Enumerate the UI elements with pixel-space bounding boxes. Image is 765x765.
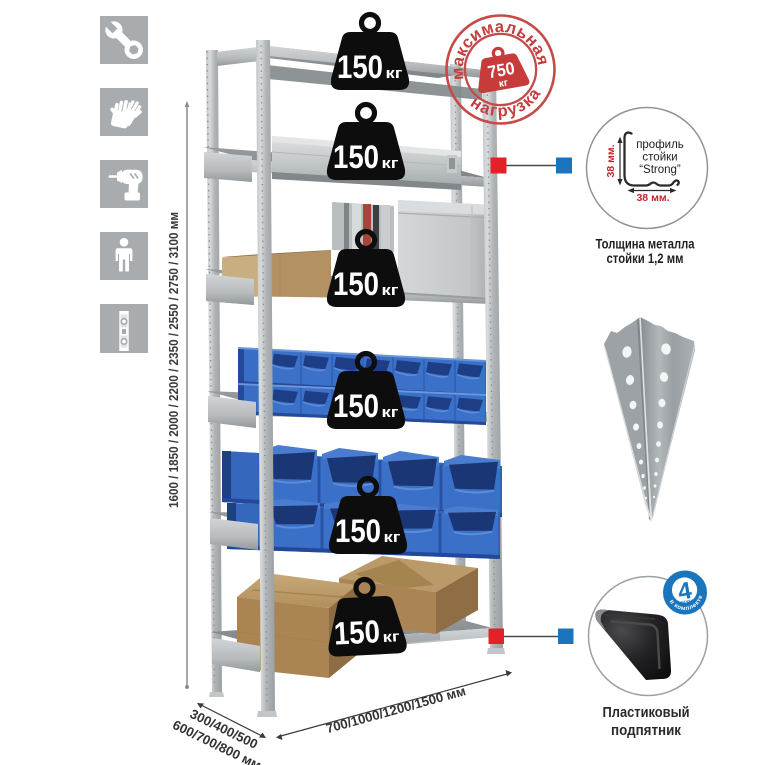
svg-text:подпятник: подпятник xyxy=(611,722,681,739)
svg-text:38 мм.: 38 мм. xyxy=(636,192,669,204)
svg-text:стойки: стойки xyxy=(642,152,677,164)
svg-text:кг: кг xyxy=(498,77,509,89)
svg-text:профиль: профиль xyxy=(636,139,684,151)
svg-text:стойки 1,2 мм: стойки 1,2 мм xyxy=(607,250,684,266)
svg-text:38 мм.: 38 мм. xyxy=(605,144,617,177)
svg-text:“Strong”: “Strong” xyxy=(639,164,681,176)
svg-text:1600 / 1850 / 2000 / 2200 / 23: 1600 / 1850 / 2000 / 2200 / 2350 / 2550 … xyxy=(167,212,181,508)
svg-text:Пластиковый: Пластиковый xyxy=(603,704,690,721)
